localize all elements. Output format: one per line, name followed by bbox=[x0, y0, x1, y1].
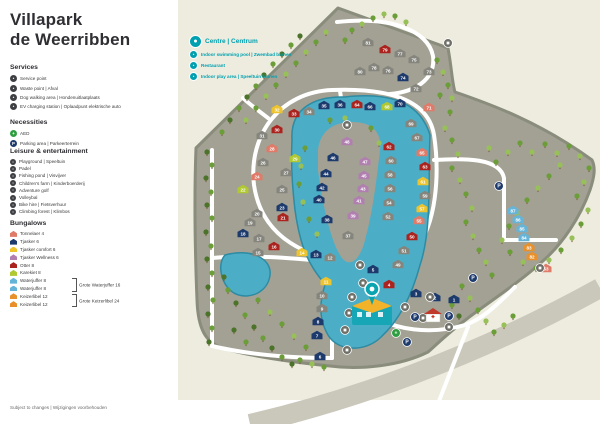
legend-item: •Padel bbox=[10, 165, 88, 172]
tree-icon bbox=[403, 19, 408, 26]
svg-text:28: 28 bbox=[269, 147, 275, 152]
svg-text:55: 55 bbox=[416, 219, 422, 224]
svg-text:30: 30 bbox=[274, 128, 280, 133]
bungalow-type-icon bbox=[10, 231, 17, 237]
page-title: Villapark de Weerribben bbox=[10, 10, 130, 49]
map-key-item: •Indoor swimming pool | Zwembad binnen bbox=[190, 51, 291, 58]
service-icon bbox=[356, 261, 365, 270]
svg-text:27: 27 bbox=[283, 171, 289, 176]
bungalow-group-label: Grote Keizerlibel 24 bbox=[79, 298, 119, 303]
svg-text:70: 70 bbox=[397, 102, 403, 107]
svg-text:11: 11 bbox=[324, 280, 329, 285]
svg-text:31: 31 bbox=[259, 134, 265, 139]
legend-item-label: Tjasker comfort 6 bbox=[20, 247, 55, 252]
bungalow-type-icon bbox=[10, 293, 17, 299]
svg-text:54: 54 bbox=[386, 201, 392, 206]
services-section: Services •Service point•Waste point | Af… bbox=[10, 64, 121, 112]
svg-text:4: 4 bbox=[388, 283, 391, 288]
legend-item: •Adventure golf bbox=[10, 187, 88, 194]
svg-text:45: 45 bbox=[361, 174, 367, 179]
fishing-icon: • bbox=[10, 173, 16, 179]
parking-icon: P bbox=[469, 274, 478, 283]
service-icon bbox=[343, 121, 352, 130]
svg-text:10: 10 bbox=[319, 294, 325, 299]
legend-item-label: Waterjuffer 8 bbox=[20, 278, 46, 283]
svg-text:46: 46 bbox=[330, 156, 336, 161]
park-map-page: 1234567891011121314151617181920212223242… bbox=[0, 0, 600, 424]
svg-text:1: 1 bbox=[453, 298, 456, 303]
svg-text:52: 52 bbox=[385, 215, 391, 220]
parking-icon: P bbox=[10, 140, 17, 147]
svg-text:9: 9 bbox=[321, 307, 324, 312]
svg-text:65: 65 bbox=[419, 151, 425, 156]
svg-text:78: 78 bbox=[371, 66, 377, 71]
svg-text:47: 47 bbox=[362, 160, 368, 165]
tree-icon bbox=[483, 318, 488, 325]
tree-icon bbox=[546, 257, 551, 264]
necessities-section: Necessities +AEDPParking area | Parkeert… bbox=[10, 119, 79, 148]
farm-icon: • bbox=[10, 180, 16, 186]
map-key-item: •Restaurant bbox=[190, 62, 291, 69]
bungalow-type-icon bbox=[10, 278, 17, 284]
tree-icon bbox=[381, 11, 386, 18]
legend-item-label: Dog walking area | Hondenuitlaatplaats bbox=[20, 95, 100, 100]
svg-text:59: 59 bbox=[422, 194, 428, 199]
svg-text:64: 64 bbox=[354, 103, 360, 108]
tree-icon bbox=[297, 33, 302, 40]
legend-item: Tjasker Wellness 6 bbox=[10, 253, 59, 261]
swimming-pool-icon: • bbox=[190, 51, 197, 58]
svg-text:7: 7 bbox=[316, 334, 319, 339]
svg-text:63: 63 bbox=[422, 165, 428, 170]
svg-text:37: 37 bbox=[345, 234, 351, 239]
svg-text:58: 58 bbox=[387, 173, 393, 178]
svg-text:87: 87 bbox=[510, 209, 516, 214]
legend-item-label: EV charging station | Oplaadpunt elektri… bbox=[20, 104, 121, 109]
svg-text:32: 32 bbox=[274, 108, 280, 113]
leisure-section: Leisure & entertainment •Playground | Sp… bbox=[10, 148, 88, 216]
tree-icon bbox=[569, 235, 574, 242]
svg-text:16: 16 bbox=[271, 245, 277, 250]
legend-item-label: Children's farm | Kinderboerderij bbox=[19, 181, 85, 186]
legend-item-label: Waterjuffer 8 bbox=[20, 286, 46, 291]
svg-text:17: 17 bbox=[256, 237, 262, 242]
legend-item: Tonnelaer 4 bbox=[10, 230, 59, 238]
svg-text:24: 24 bbox=[254, 175, 260, 180]
svg-text:5: 5 bbox=[372, 268, 375, 273]
padel-icon: • bbox=[10, 166, 16, 172]
bike-icon: • bbox=[10, 202, 16, 208]
legend-item: Otter 8 bbox=[10, 261, 59, 269]
service-icon bbox=[401, 303, 410, 312]
svg-text:75: 75 bbox=[411, 58, 417, 63]
legend-item: •Service point bbox=[10, 74, 121, 83]
bungalow-group-bracket: Grote Keizerlibel 24 bbox=[72, 294, 77, 308]
legend-item: •Waste point | Afval bbox=[10, 83, 121, 92]
svg-text:6: 6 bbox=[319, 355, 322, 360]
legend-item-label: Playground | Speeltuin bbox=[19, 159, 65, 164]
service-icon bbox=[536, 264, 545, 273]
svg-text:19: 19 bbox=[247, 221, 253, 226]
service-icon bbox=[343, 346, 352, 355]
necessities-header: Necessities bbox=[10, 119, 79, 126]
svg-text:81: 81 bbox=[365, 41, 371, 46]
svg-text:72: 72 bbox=[413, 87, 419, 92]
svg-text:73: 73 bbox=[426, 70, 432, 75]
svg-text:62: 62 bbox=[386, 145, 392, 150]
legend-panel: Villapark de Weerribben Services •Servic… bbox=[0, 0, 178, 424]
map-key-item-label: Indoor play area | Speeltuin binnen bbox=[201, 74, 277, 79]
bungalow-type-icon bbox=[10, 301, 17, 307]
svg-text:40: 40 bbox=[316, 198, 322, 203]
legend-item-label: Adventure golf bbox=[19, 188, 49, 193]
service-icon bbox=[341, 326, 350, 335]
svg-text:84: 84 bbox=[521, 236, 527, 241]
legend-item: •Fishing pond | Visvijver bbox=[10, 172, 88, 179]
svg-text:44: 44 bbox=[323, 172, 329, 177]
svg-text:50: 50 bbox=[409, 235, 415, 240]
svg-text:83: 83 bbox=[526, 246, 532, 251]
parking-icon: P bbox=[411, 313, 420, 322]
parking-icon: P bbox=[445, 312, 454, 321]
leisure-header: Leisure & entertainment bbox=[10, 148, 88, 155]
svg-text:14: 14 bbox=[299, 251, 305, 256]
bungalow-type-icon bbox=[10, 247, 17, 253]
footer-note: Subject to changes | Wijzigingen voorbeh… bbox=[10, 405, 107, 410]
svg-text:26: 26 bbox=[260, 161, 266, 166]
bungalow-group-bracket: Grote Waterjuffer 16 bbox=[72, 278, 77, 292]
bungalows-section: Bungalows Tonnelaer 4Tjasker 6Tjasker co… bbox=[10, 220, 59, 308]
bungalows-header: Bungalows bbox=[10, 220, 59, 227]
service-icon bbox=[348, 293, 357, 302]
svg-text:22: 22 bbox=[240, 188, 246, 193]
legend-item: +AED bbox=[10, 129, 79, 138]
legend-item: •Volleybal bbox=[10, 194, 88, 201]
tree-icon bbox=[289, 361, 294, 368]
svg-text:13: 13 bbox=[313, 253, 319, 258]
svg-text:35: 35 bbox=[321, 104, 327, 109]
svg-text:18: 18 bbox=[240, 232, 246, 237]
legend-item-label: Keizerlibel 12 bbox=[20, 302, 48, 307]
legend-item-label: AED bbox=[20, 131, 29, 136]
svg-text:8: 8 bbox=[317, 320, 320, 325]
tree-icon bbox=[392, 13, 397, 20]
tree-icon bbox=[309, 361, 314, 368]
svg-text:85: 85 bbox=[519, 227, 525, 232]
legend-item-label: Karekiet 8 bbox=[20, 270, 41, 275]
legend-item-label: Tonnelaer 4 bbox=[20, 231, 44, 236]
svg-text:41: 41 bbox=[356, 199, 362, 204]
svg-text:25: 25 bbox=[279, 188, 285, 193]
legend-item-label: Climbing forest | Klimbos bbox=[19, 209, 70, 214]
svg-text:66: 66 bbox=[367, 105, 373, 110]
legend-item: PParking area | Parkeerterrein bbox=[10, 138, 79, 147]
legend-item: •Children's farm | Kinderboerderij bbox=[10, 180, 88, 187]
volleyball-icon: • bbox=[10, 195, 16, 201]
svg-text:77: 77 bbox=[397, 52, 403, 57]
svg-text:60: 60 bbox=[388, 159, 394, 164]
legend-item-label: Volleybal bbox=[19, 195, 37, 200]
climbing-icon: • bbox=[10, 209, 16, 215]
dog-walking-icon: • bbox=[10, 94, 17, 101]
svg-text:56: 56 bbox=[387, 187, 393, 192]
svg-text:12: 12 bbox=[327, 256, 333, 261]
legend-item: •Climbing forest | Klimbos bbox=[10, 208, 88, 215]
parking-icon: P bbox=[495, 182, 504, 191]
svg-text:71: 71 bbox=[426, 106, 432, 111]
svg-text:23: 23 bbox=[279, 206, 285, 211]
bungalow-type-icon bbox=[10, 286, 17, 292]
bungalow-type-icon bbox=[10, 270, 17, 276]
tree-icon bbox=[585, 207, 590, 214]
ev-charging-icon: • bbox=[10, 103, 17, 110]
svg-text:43: 43 bbox=[360, 187, 366, 192]
legend-item: Waterjuffer 8 bbox=[10, 285, 59, 293]
legend-item-label: Padel bbox=[19, 166, 31, 171]
tree-icon bbox=[558, 247, 563, 254]
aed-icon: + bbox=[10, 130, 17, 137]
svg-text:80: 80 bbox=[357, 70, 363, 75]
legend-item: Karekiet 8 bbox=[10, 269, 59, 277]
legend-item-label: Service point bbox=[20, 76, 47, 81]
svg-text:76: 76 bbox=[385, 69, 391, 74]
legend-item-label: Waste point | Afval bbox=[20, 86, 58, 91]
svg-text:51: 51 bbox=[401, 249, 407, 254]
legend-item: Keizerlibel 12 bbox=[10, 292, 59, 300]
svg-text:21: 21 bbox=[280, 216, 286, 221]
svg-text:38: 38 bbox=[324, 218, 330, 223]
svg-text:42: 42 bbox=[319, 186, 325, 191]
svg-text:67: 67 bbox=[414, 136, 420, 141]
playground-icon: • bbox=[10, 159, 16, 165]
svg-text:+: + bbox=[395, 331, 398, 337]
bungalow-type-icon bbox=[10, 239, 17, 245]
golf-icon: • bbox=[10, 187, 16, 193]
svg-text:33: 33 bbox=[291, 112, 297, 117]
parking-icon: P bbox=[403, 338, 412, 347]
legend-item-label: Parking area | Parkeerterrein bbox=[20, 141, 79, 146]
legend-item: •Dog walking area | Hondenuitlaatplaats bbox=[10, 93, 121, 102]
service-icon bbox=[444, 39, 453, 48]
map-key: ● Centre | Centrum •Indoor swimming pool… bbox=[190, 36, 291, 84]
map-key-item: •Indoor play area | Speeltuin binnen bbox=[190, 73, 291, 80]
legend-item-label: Otter 8 bbox=[20, 263, 34, 268]
bungalow-type-icon bbox=[10, 254, 17, 260]
bungalow-type-icon bbox=[10, 262, 17, 268]
legend-item-label: Keizerlibel 12 bbox=[20, 294, 48, 299]
service-icon bbox=[445, 323, 454, 332]
svg-text:49: 49 bbox=[395, 263, 401, 268]
svg-text:79: 79 bbox=[382, 48, 388, 53]
svg-text:48: 48 bbox=[344, 140, 350, 145]
aed-icon: + bbox=[392, 329, 401, 338]
map-key-title: Centre | Centrum bbox=[205, 38, 258, 45]
svg-text:15: 15 bbox=[255, 251, 261, 256]
svg-text:29: 29 bbox=[292, 157, 298, 162]
legend-item-label: Bike hire | Fietsverhuur bbox=[19, 202, 66, 207]
tree-icon bbox=[321, 364, 326, 371]
legend-item: •Bike hire | Fietsverhuur bbox=[10, 201, 88, 208]
tree-icon bbox=[510, 313, 515, 320]
legend-item-label: Tjasker 6 bbox=[20, 239, 39, 244]
legend-item-label: Fishing pond | Visvijver bbox=[19, 173, 66, 178]
svg-text:69: 69 bbox=[408, 122, 414, 127]
legend-item: Tjasker 6 bbox=[10, 238, 59, 246]
centre-pin-legend-icon: ● bbox=[190, 36, 201, 47]
svg-text:61: 61 bbox=[420, 180, 426, 185]
restaurant-icon: • bbox=[190, 62, 197, 69]
legend-item: Keizerlibel 12 bbox=[10, 300, 59, 308]
legend-item-label: Tjasker Wellness 6 bbox=[20, 255, 59, 260]
svg-text:74: 74 bbox=[400, 76, 406, 81]
svg-text:20: 20 bbox=[254, 212, 260, 217]
map-key-item-label: Indoor swimming pool | Zwembad binnen bbox=[201, 52, 291, 57]
waste-point-icon: • bbox=[10, 85, 17, 92]
legend-item: •EV charging station | Oplaadpunt elektr… bbox=[10, 102, 121, 111]
bungalow-group-label: Grote Waterjuffer 16 bbox=[79, 283, 120, 288]
indoor-play-icon: • bbox=[190, 73, 197, 80]
legend-item: Tjasker comfort 6 bbox=[10, 246, 59, 254]
svg-text:34: 34 bbox=[306, 110, 312, 115]
svg-text:36: 36 bbox=[337, 103, 343, 108]
svg-text:68: 68 bbox=[384, 105, 390, 110]
services-header: Services bbox=[10, 64, 121, 71]
svg-text:86: 86 bbox=[515, 218, 521, 223]
tree-icon bbox=[578, 221, 583, 228]
service-point-icon: • bbox=[10, 75, 17, 82]
legend-item: •Playground | Speeltuin bbox=[10, 158, 88, 165]
svg-text:39: 39 bbox=[350, 214, 356, 219]
map-key-item-label: Restaurant bbox=[201, 63, 225, 68]
service-icon bbox=[426, 293, 435, 302]
svg-text:82: 82 bbox=[529, 255, 535, 260]
svg-text:3: 3 bbox=[415, 292, 418, 297]
svg-text:57: 57 bbox=[419, 207, 425, 212]
legend-item: Waterjuffer 8 bbox=[10, 277, 59, 285]
